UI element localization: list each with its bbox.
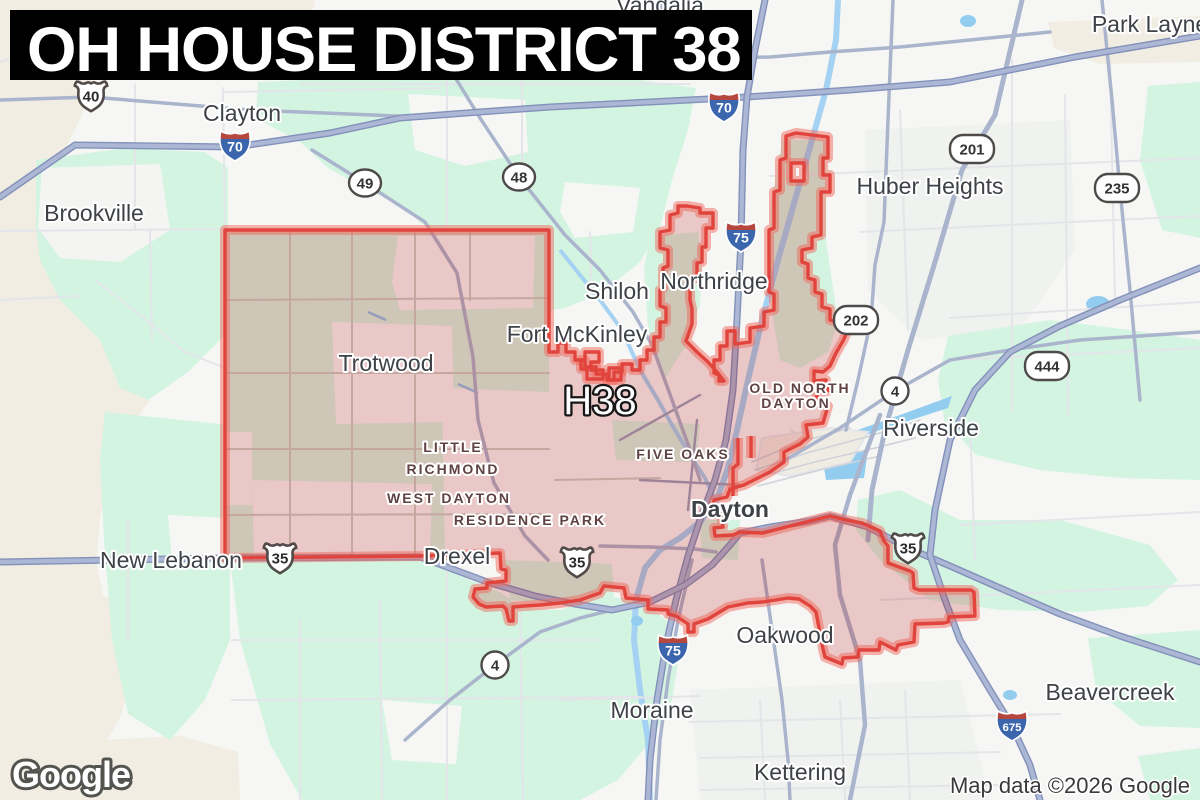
svg-text:Google: Google <box>12 754 130 795</box>
svg-text:H38: H38 <box>563 379 636 423</box>
svg-text:Oakwood: Oakwood <box>736 622 833 648</box>
svg-text:444: 444 <box>1034 359 1060 376</box>
svg-text:New Lebanon: New Lebanon <box>100 547 242 573</box>
svg-text:Park Layne: Park Layne <box>1092 11 1200 37</box>
svg-text:FIVE OAKS: FIVE OAKS <box>636 446 729 462</box>
svg-text:201: 201 <box>959 142 984 159</box>
svg-text:675: 675 <box>1002 722 1022 734</box>
svg-text:202: 202 <box>843 313 868 330</box>
svg-text:DAYTON: DAYTON <box>761 395 831 411</box>
svg-text:Northridge: Northridge <box>660 268 767 294</box>
svg-text:75: 75 <box>665 643 681 659</box>
svg-text:Fort McKinley: Fort McKinley <box>507 321 648 347</box>
svg-text:WEST DAYTON: WEST DAYTON <box>387 490 511 506</box>
svg-text:35: 35 <box>569 555 586 572</box>
svg-text:OH HOUSE DISTRICT 38: OH HOUSE DISTRICT 38 <box>27 15 740 85</box>
svg-text:RICHMOND: RICHMOND <box>407 461 500 477</box>
svg-text:Shiloh: Shiloh <box>585 278 649 304</box>
svg-text:49: 49 <box>357 176 374 193</box>
svg-text:70: 70 <box>227 139 243 155</box>
svg-text:Beavercreek: Beavercreek <box>1045 679 1175 705</box>
svg-text:70: 70 <box>716 100 732 116</box>
svg-text:Trotwood: Trotwood <box>338 350 433 376</box>
svg-text:Riverside: Riverside <box>883 415 979 441</box>
svg-text:35: 35 <box>272 551 289 568</box>
svg-text:40: 40 <box>83 89 100 106</box>
svg-text:Kettering: Kettering <box>754 759 846 785</box>
svg-text:48: 48 <box>511 170 528 187</box>
svg-text:Moraine: Moraine <box>610 697 693 723</box>
svg-text:4: 4 <box>891 384 900 401</box>
svg-text:LITTLE: LITTLE <box>423 439 482 455</box>
svg-text:75: 75 <box>733 230 749 246</box>
svg-text:RESIDENCE PARK: RESIDENCE PARK <box>454 512 606 528</box>
svg-text:Map data ©2026 Google: Map data ©2026 Google <box>950 773 1190 798</box>
svg-text:Huber Heights: Huber Heights <box>856 173 1003 199</box>
svg-text:235: 235 <box>1104 181 1129 198</box>
svg-text:4: 4 <box>491 658 500 675</box>
svg-text:Drexel: Drexel <box>424 543 490 569</box>
svg-text:35: 35 <box>900 541 917 558</box>
svg-text:Dayton: Dayton <box>691 496 769 522</box>
svg-text:Brookville: Brookville <box>44 200 144 226</box>
svg-text:OLD NORTH: OLD NORTH <box>749 380 850 396</box>
svg-text:Clayton: Clayton <box>203 100 281 126</box>
